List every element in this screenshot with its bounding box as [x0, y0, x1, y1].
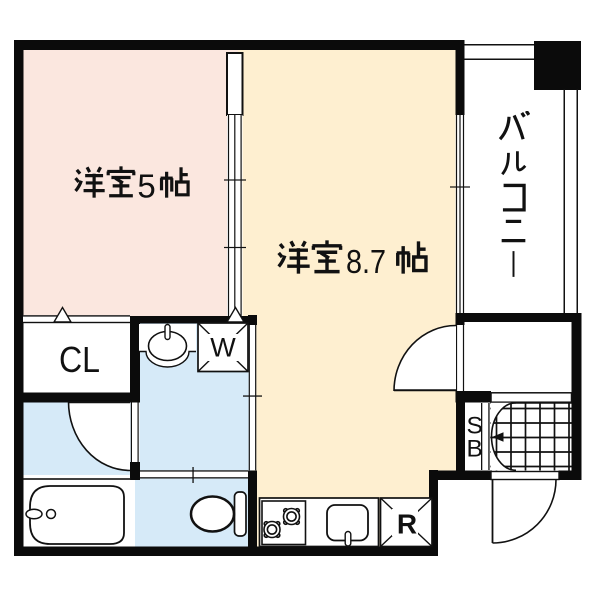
- svg-text:R: R: [397, 509, 417, 540]
- svg-text:B: B: [467, 436, 483, 463]
- svg-text:W: W: [210, 333, 236, 363]
- svg-text:CL: CL: [59, 339, 100, 380]
- svg-text:8.7: 8.7: [346, 243, 386, 280]
- svg-text:5: 5: [137, 168, 155, 205]
